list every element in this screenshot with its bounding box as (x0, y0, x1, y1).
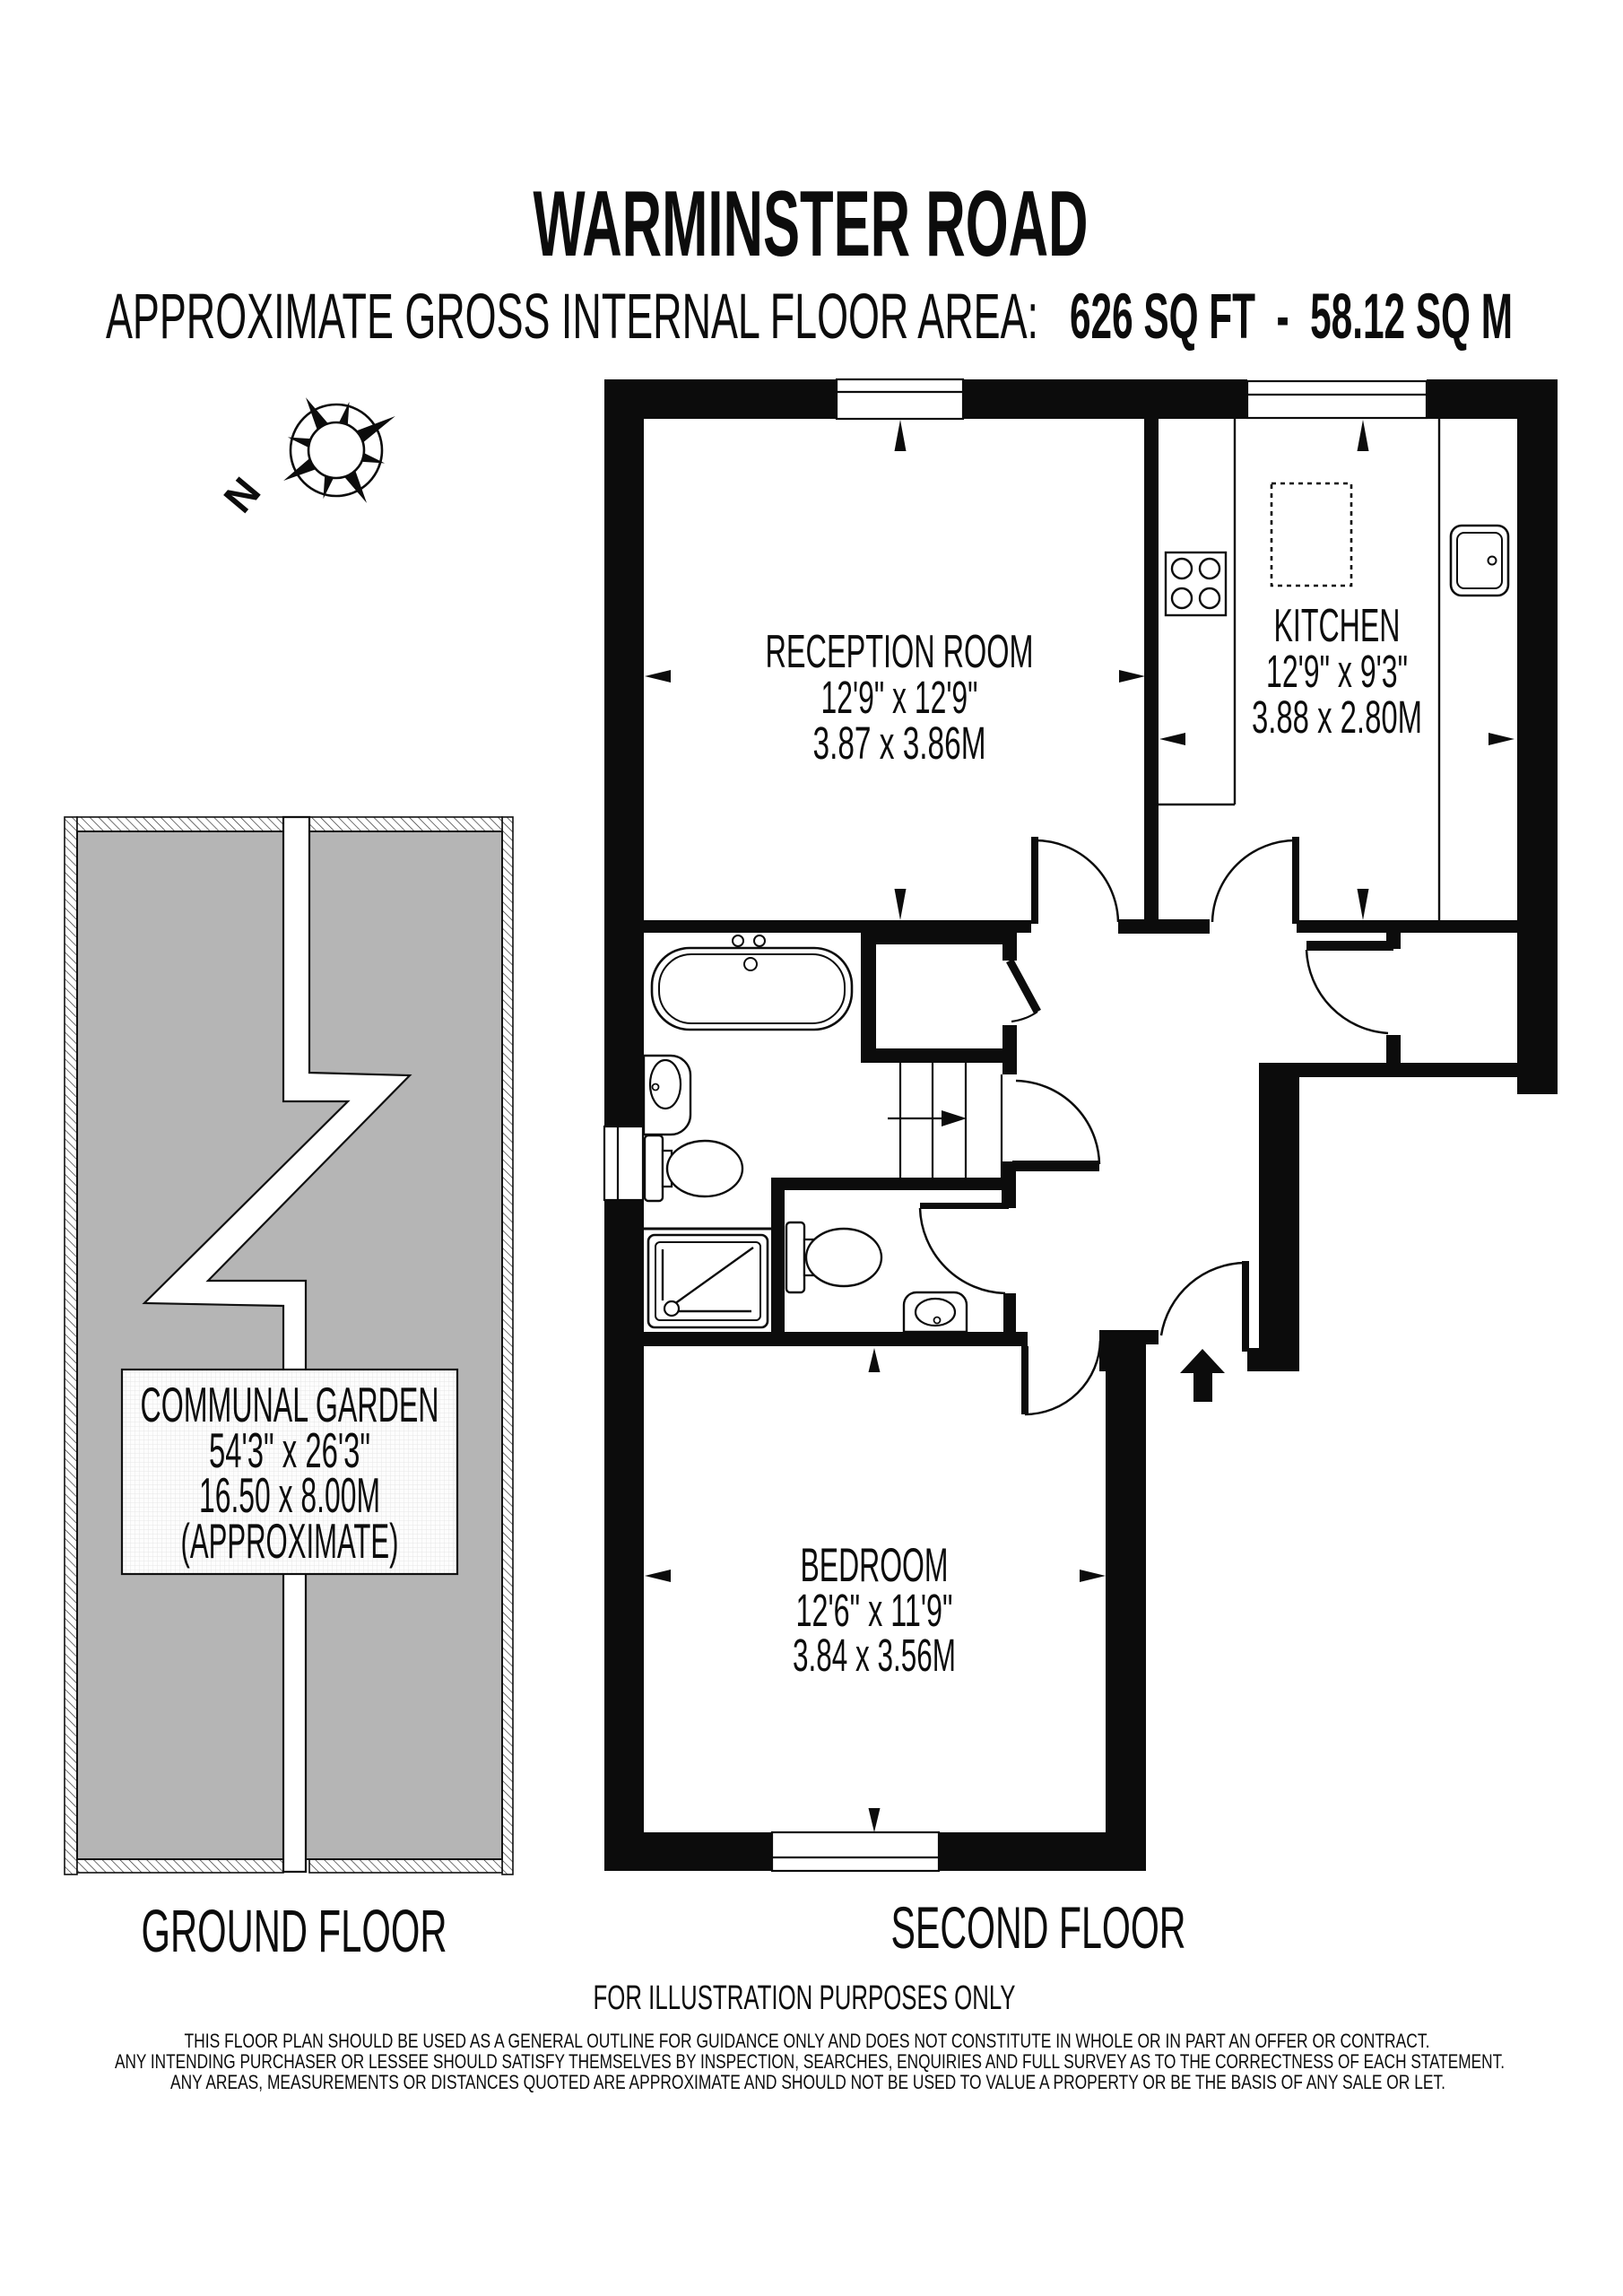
svg-text:FOR ILLUSTRATION PURPOSES ONLY: FOR ILLUSTRATION PURPOSES ONLY (594, 1979, 1016, 2017)
svg-text:SECOND FLOOR: SECOND FLOOR (891, 1894, 1186, 1961)
svg-text:3.84 x 3.56M: 3.84 x 3.56M (793, 1630, 956, 1681)
svg-text:3.88 x 2.80M: 3.88 x 2.80M (1252, 691, 1422, 743)
svg-text:(APPROXIMATE): (APPROXIMATE) (181, 1513, 399, 1569)
svg-text:RECEPTION ROOM: RECEPTION ROOM (766, 626, 1034, 678)
svg-text:THIS FLOOR PLAN SHOULD BE USED: THIS FLOOR PLAN SHOULD BE USED AS A GENE… (185, 2030, 1430, 2052)
svg-text:3.87 x 3.86M: 3.87 x 3.86M (813, 717, 986, 769)
svg-text:12'9" x 12'9": 12'9" x 12'9" (821, 672, 978, 723)
svg-text:KITCHEN: KITCHEN (1274, 600, 1401, 652)
svg-text:ANY AREAS, MEASUREMENTS OR DIS: ANY AREAS, MEASUREMENTS OR DISTANCES QUO… (170, 2071, 1445, 2093)
svg-text:GROUND FLOOR: GROUND FLOOR (142, 1898, 447, 1965)
svg-text:ANY INTENDING PURCHASER OR LES: ANY INTENDING PURCHASER OR LESSEE SHOULD… (115, 2050, 1505, 2073)
svg-text:12'9" x 9'3": 12'9" x 9'3" (1266, 646, 1408, 697)
svg-text:626 SQ FT - 58.12 SQ M: 626 SQ FT - 58.12 SQ M (1070, 282, 1513, 352)
svg-text:WARMINSTER ROAD: WARMINSTER ROAD (534, 172, 1089, 276)
svg-text:APPROXIMATE GROSS INTERNAL FLO: APPROXIMATE GROSS INTERNAL FLOOR AREA: (106, 282, 1038, 352)
svg-text:12'6" x 11'9": 12'6" x 11'9" (796, 1585, 953, 1636)
